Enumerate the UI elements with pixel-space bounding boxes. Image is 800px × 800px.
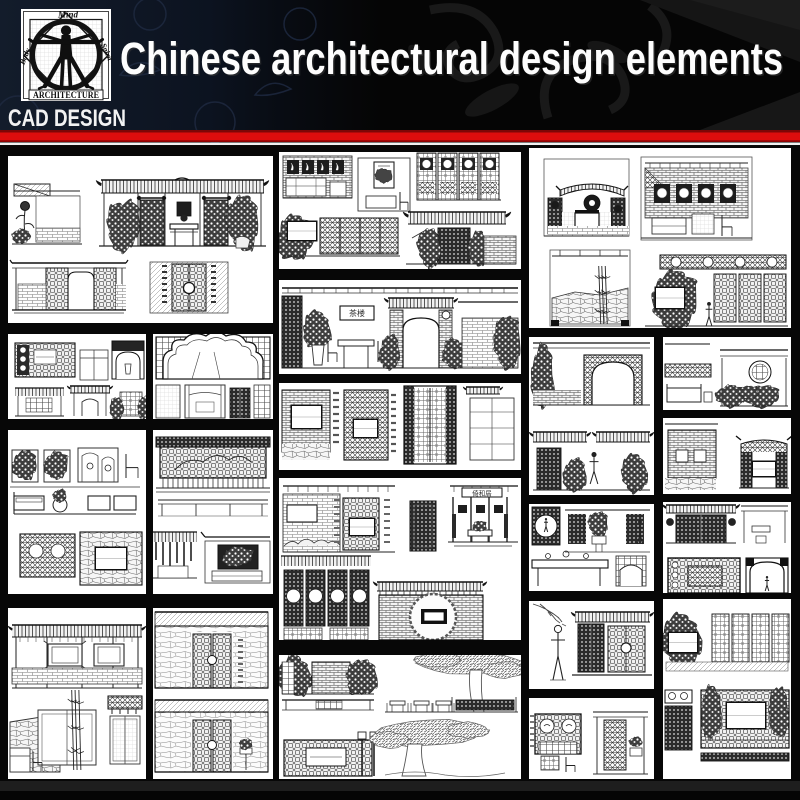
svg-text:ARCHITECTURE: ARCHITECTURE xyxy=(33,91,99,101)
svg-text:CAD DESIGN: CAD DESIGN xyxy=(8,105,126,132)
svg-text:茶楼: 茶楼 xyxy=(349,308,365,318)
svg-text:倚和居: 倚和居 xyxy=(472,489,492,498)
svg-text:Mind: Mind xyxy=(57,10,79,20)
svg-text:Chinese architectural design e: Chinese architectural design elements xyxy=(120,33,783,84)
